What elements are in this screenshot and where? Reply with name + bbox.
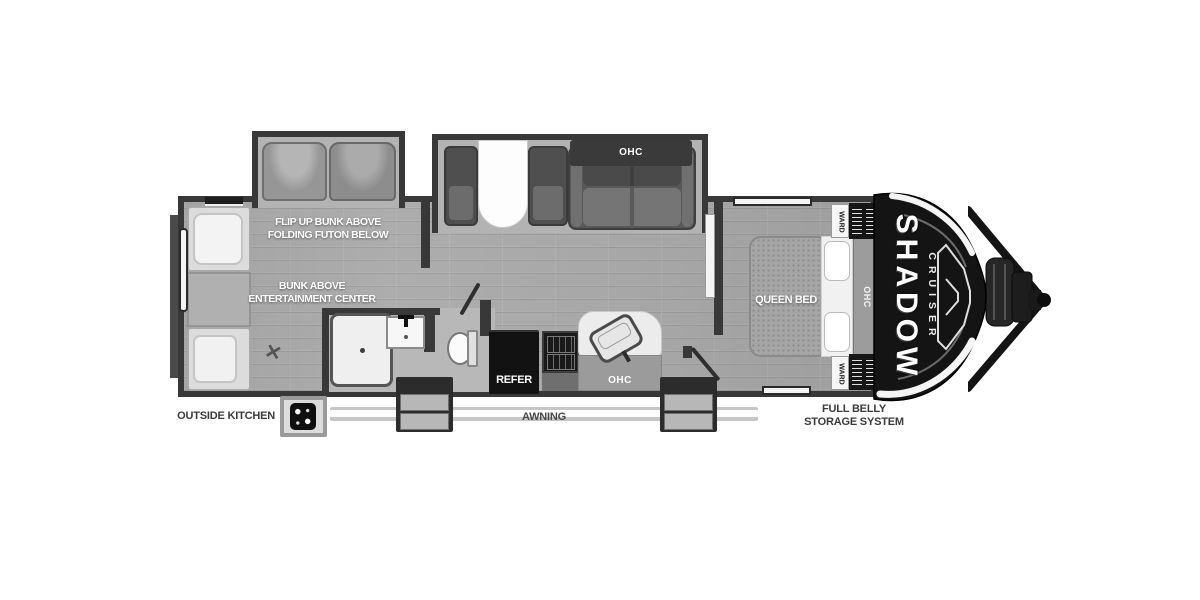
cabinet-shelf-lines — [852, 357, 862, 387]
bathroom-wall-left — [322, 308, 329, 392]
bathroom-sink — [386, 316, 425, 349]
step-tread — [400, 413, 449, 430]
dinette-bench-right — [528, 146, 568, 226]
refrigerator-label: REFER — [489, 374, 539, 386]
sofa-seat-cushions — [583, 188, 681, 226]
full-belly-label-line1: FULL BELLY — [790, 403, 918, 416]
sink-bowl — [596, 321, 633, 351]
seat-cushion — [193, 213, 243, 265]
seat-cushion — [193, 335, 237, 383]
burner-icon — [290, 403, 316, 430]
brand-name-shadow: SHADOW — [889, 214, 923, 381]
refrigerator: REFER — [489, 330, 539, 394]
overhead-cabinet-kitchen-label: OHC — [608, 375, 632, 386]
stove-base — [542, 373, 579, 391]
window — [733, 197, 812, 206]
dinette-table — [478, 140, 528, 228]
outside-kitchen-label: OUTSIDE KITCHEN — [150, 410, 275, 423]
step-tread — [664, 394, 713, 411]
queen-bed-label: QUEEN BED — [749, 294, 823, 307]
cabinet-shelf-lines — [852, 206, 862, 236]
pillow — [824, 241, 850, 281]
hitch-ball-icon — [1037, 293, 1051, 307]
floorplan-canvas: ✕ FLIP UP BUNK ABOVE FOLDING FUTON BELOW… — [0, 0, 1200, 600]
bunk-seat-bottom — [187, 327, 251, 391]
overhead-cabinet-sofa-label: OHC — [619, 147, 643, 158]
propane-tank — [986, 258, 1014, 326]
outside-kitchen-compartment — [280, 396, 327, 437]
stove — [542, 331, 579, 373]
bunk-seat-top — [187, 206, 251, 272]
flip-up-bunk-label-line2: FOLDING FUTON BELOW — [250, 229, 406, 242]
step-tread — [400, 394, 449, 411]
futon-cushion-left — [262, 142, 327, 201]
window — [179, 228, 188, 312]
toilet-tank — [467, 330, 478, 367]
wardrobe-bottom: WARD — [831, 356, 849, 390]
brand-name-cruiser: CRUISER — [926, 252, 938, 341]
burner-grate — [547, 354, 575, 370]
window — [762, 386, 811, 395]
bedroom-partition-wall — [714, 202, 723, 335]
full-belly-label: FULL BELLY STORAGE SYSTEM — [790, 403, 918, 429]
drain-icon — [404, 335, 408, 339]
awning-label: AWNING — [522, 411, 566, 423]
outside-kitchen-label-text: OUTSIDE KITCHEN — [177, 410, 275, 422]
drain-icon — [360, 348, 365, 353]
shower — [330, 313, 393, 387]
overhead-cabinet-sofa: OHC — [570, 140, 692, 166]
pillow — [824, 312, 850, 352]
partition-wall-bunkroom — [421, 202, 430, 268]
wardrobe-top: WARD — [831, 204, 849, 238]
faucet-icon — [404, 319, 408, 327]
bedroom-pocket-door — [705, 214, 715, 298]
entry-step — [660, 377, 717, 432]
wardrobe-top-label: WARD — [838, 211, 845, 232]
burner-grate — [547, 336, 575, 353]
dinette-bench-left — [444, 146, 478, 226]
bathroom-wall-stub — [424, 308, 435, 352]
bunk-above-label-line1: BUNK ABOVE — [234, 280, 390, 293]
queen-bed-label-text: QUEEN BED — [755, 294, 817, 306]
futon-cushion-right — [329, 142, 396, 201]
flip-up-bunk-label: FLIP UP BUNK ABOVE FOLDING FUTON BELOW — [250, 216, 406, 242]
overhead-cabinet-kitchen: OHC — [578, 355, 662, 391]
full-belly-label-line2: STORAGE SYSTEM — [790, 416, 918, 429]
wardrobe-bottom-label: WARD — [838, 363, 845, 384]
flip-up-bunk-label-line1: FLIP UP BUNK ABOVE — [250, 216, 406, 229]
window — [205, 197, 243, 206]
headboard-cabinet-label: OHC — [862, 286, 872, 308]
bunk-above-label-line2: ENTERTAINMENT CENTER — [234, 293, 390, 306]
entry-step — [396, 377, 453, 432]
front-cap: SHADOW CRUISER — [872, 183, 988, 411]
step-tread — [664, 413, 713, 430]
bunk-above-label: BUNK ABOVE ENTERTAINMENT CENTER — [234, 280, 390, 306]
